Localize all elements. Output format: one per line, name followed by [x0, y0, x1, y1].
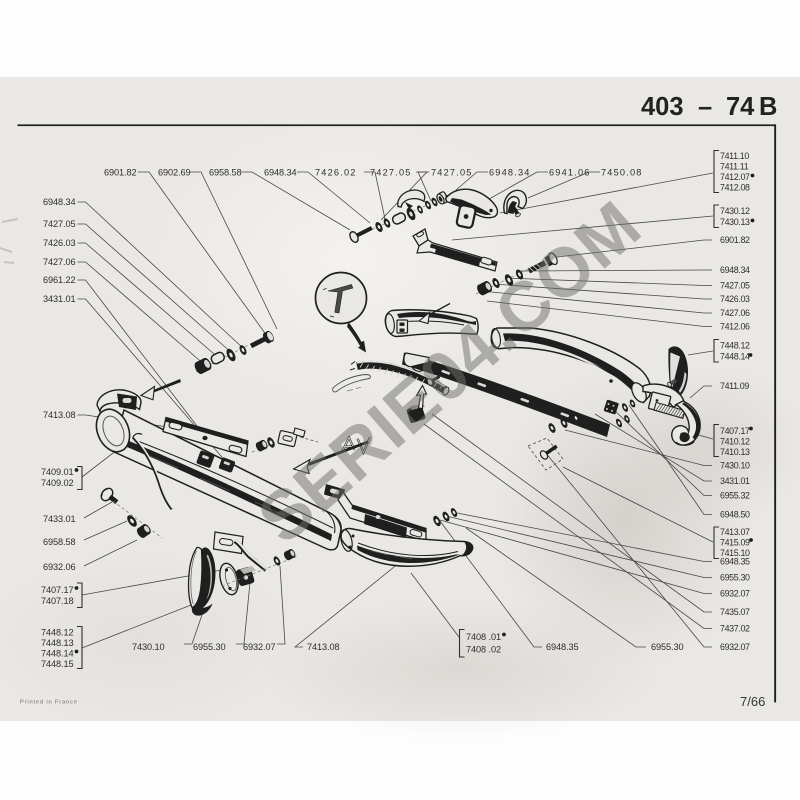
- svg-text:7437.02: 7437.02: [720, 624, 750, 634]
- svg-text:7448.15: 7448.15: [41, 659, 74, 669]
- svg-text:7410.13: 7410.13: [720, 447, 750, 457]
- svg-text:7435.07: 7435.07: [720, 607, 750, 617]
- svg-text:6948.50: 6948.50: [720, 510, 750, 520]
- svg-text:6948.34: 6948.34: [43, 197, 76, 207]
- svg-text:7408 .01: 7408 .01: [466, 632, 501, 642]
- svg-text:7427.05: 7427.05: [43, 219, 76, 229]
- svg-text:6955.30: 6955.30: [720, 573, 750, 583]
- svg-text:6958.58: 6958.58: [209, 167, 242, 177]
- svg-text:6932.07: 6932.07: [720, 642, 750, 652]
- svg-text:74: 74: [726, 93, 755, 121]
- svg-text:6961.22: 6961.22: [43, 275, 76, 285]
- svg-text:7448.14: 7448.14: [720, 352, 750, 362]
- svg-text:6941.06: 6941.06: [549, 167, 591, 177]
- svg-text:7430.12: 7430.12: [720, 206, 750, 216]
- svg-text:3431.01: 3431.01: [43, 294, 76, 304]
- svg-text:7407.17: 7407.17: [41, 585, 74, 595]
- svg-text:7412.08: 7412.08: [720, 183, 750, 193]
- svg-text:6955.30: 6955.30: [193, 642, 226, 652]
- svg-text:7427.06: 7427.06: [720, 308, 750, 318]
- svg-text:–: –: [698, 93, 712, 121]
- svg-text:6948.34: 6948.34: [264, 167, 297, 177]
- svg-text:7448.12: 7448.12: [41, 628, 74, 638]
- svg-text:7411.09: 7411.09: [720, 381, 749, 391]
- svg-text:B: B: [759, 93, 777, 121]
- svg-text:6948.35: 6948.35: [546, 642, 579, 652]
- svg-text:403: 403: [641, 93, 684, 121]
- svg-text:7430.10: 7430.10: [132, 642, 165, 652]
- svg-text:7413.08: 7413.08: [307, 642, 340, 652]
- svg-text:6958.58: 6958.58: [43, 537, 76, 547]
- svg-text:7427.06: 7427.06: [43, 257, 76, 267]
- svg-text:7410.12: 7410.12: [720, 437, 750, 447]
- svg-text:6932.07: 6932.07: [243, 642, 276, 652]
- svg-text:6948.34: 6948.34: [720, 265, 750, 275]
- svg-text:7430.13: 7430.13: [720, 217, 750, 227]
- svg-text:7411.10: 7411.10: [720, 151, 749, 161]
- svg-text:6901.82: 6901.82: [720, 235, 750, 245]
- svg-text:7409.02: 7409.02: [41, 478, 74, 488]
- svg-text:6932.07: 6932.07: [720, 589, 750, 599]
- svg-text:3431.01: 3431.01: [720, 476, 750, 486]
- svg-text:7411.11: 7411.11: [720, 162, 749, 172]
- svg-text:7413.08: 7413.08: [43, 410, 76, 420]
- svg-text:7412.06: 7412.06: [720, 322, 750, 332]
- svg-text:6902.69: 6902.69: [158, 167, 191, 177]
- svg-text:7448.13: 7448.13: [41, 638, 74, 648]
- svg-text:6948.35: 6948.35: [720, 557, 750, 567]
- svg-text:7407.17: 7407.17: [720, 426, 750, 436]
- svg-text:6948.34: 6948.34: [489, 167, 531, 177]
- svg-text:7426.03: 7426.03: [43, 238, 76, 248]
- svg-text:7448.14: 7448.14: [41, 649, 74, 659]
- svg-text:7450.08: 7450.08: [601, 167, 643, 177]
- svg-text:6932.06: 6932.06: [43, 562, 76, 572]
- svg-text:7427.05: 7427.05: [720, 281, 750, 291]
- svg-text:7430.10: 7430.10: [720, 461, 750, 471]
- svg-text:7412.07: 7412.07: [720, 172, 750, 182]
- svg-text:7427.05: 7427.05: [431, 167, 473, 177]
- svg-text:7448.12: 7448.12: [720, 341, 750, 351]
- svg-text:7433.01: 7433.01: [43, 514, 76, 524]
- svg-text:Printed in France: Printed in France: [20, 700, 78, 706]
- svg-text:7413.07: 7413.07: [720, 527, 750, 537]
- svg-text:6955.30: 6955.30: [651, 642, 684, 652]
- svg-text:7409.01: 7409.01: [41, 467, 74, 477]
- svg-text:6901.82: 6901.82: [104, 167, 137, 177]
- svg-text:7/66: 7/66: [740, 694, 765, 709]
- svg-text:6955.32: 6955.32: [720, 491, 750, 501]
- svg-text:7408 .02: 7408 .02: [466, 645, 501, 655]
- svg-text:7426.03: 7426.03: [720, 294, 750, 304]
- svg-text:7407.18: 7407.18: [41, 596, 74, 606]
- svg-text:7426.02: 7426.02: [315, 167, 357, 177]
- svg-text:7427.05: 7427.05: [370, 167, 412, 177]
- svg-text:7415.09: 7415.09: [720, 538, 750, 548]
